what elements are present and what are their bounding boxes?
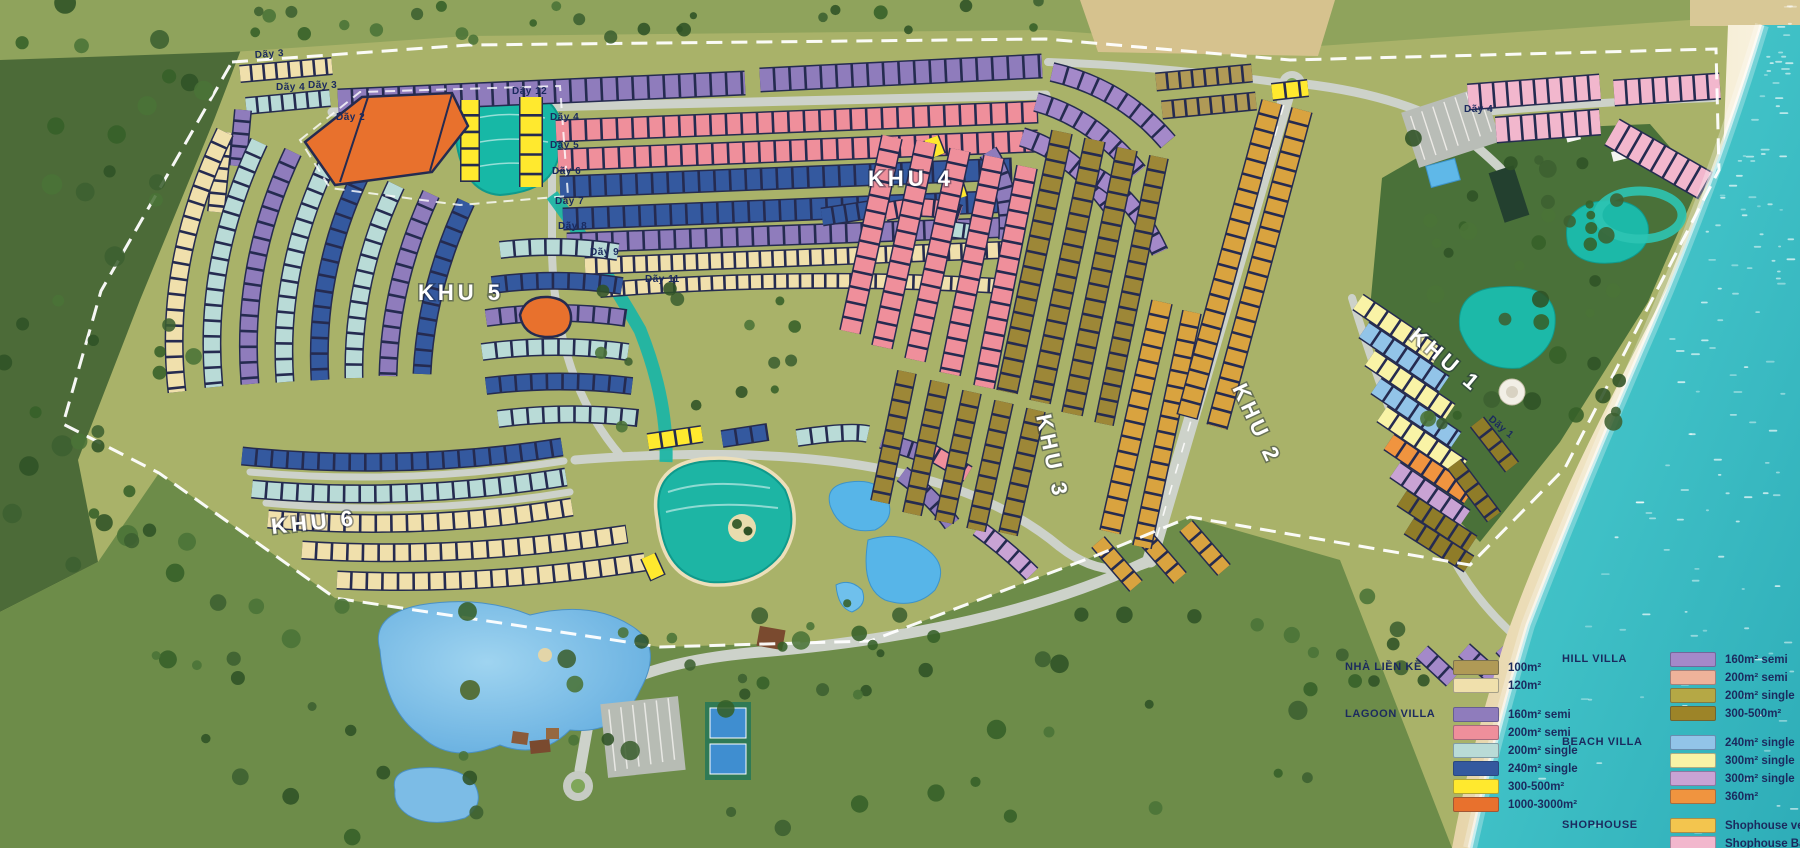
masterplan-canvas: KHU 1KHU 2KHU 3KHU 4KHU 5KHU 6Dãy 3Dãy 4…	[0, 0, 1800, 848]
row-label-2: Dãy 3	[308, 80, 337, 91]
legend-section-title: LAGOON VILLA	[1345, 707, 1453, 720]
wave-lagoon-south	[658, 461, 791, 582]
orange-lot-khu5	[520, 297, 571, 337]
legend-item: 160m² semi	[1670, 652, 1795, 667]
legend-section-title: BEACH VILLA	[1562, 735, 1670, 748]
legend-swatch	[1453, 797, 1499, 812]
legend-label: 200m² semi	[1725, 672, 1788, 684]
legend-swatch	[1670, 735, 1716, 750]
legend-label: 300m² single	[1725, 773, 1795, 785]
legend-swatch	[1453, 707, 1499, 722]
legend-label: 100m²	[1508, 662, 1541, 674]
zone-label-khu-5: KHU 5	[418, 280, 504, 305]
row-label-0: Dãy 3	[254, 48, 284, 61]
legend-label: Shophouse ven biển	[1725, 820, 1800, 832]
legend-item: 360m²	[1670, 789, 1795, 804]
legend-column-right: HILL VILLA160m² semi200m² semi200m² sing…	[1562, 652, 1800, 848]
legend-item: 240m² single	[1453, 761, 1578, 776]
legend-item: 160m² semi	[1453, 707, 1578, 722]
legend-label: 120m²	[1508, 680, 1541, 692]
row-label-12: Dãy 4	[1464, 104, 1493, 115]
legend-swatch	[1670, 670, 1716, 685]
legend-swatch	[1670, 836, 1716, 848]
legend-item: Shophouse Babylon	[1670, 836, 1800, 848]
legend-swatch	[1453, 761, 1499, 776]
legend-section: LAGOON VILLA160m² semi200m² semi200m² si…	[1345, 707, 1580, 812]
legend-item: 300m² single	[1670, 753, 1795, 768]
row-label-5: Dãy 4	[550, 112, 579, 123]
legend-section-title: HILL VILLA	[1562, 652, 1670, 665]
dune-northeast	[1690, 0, 1800, 28]
legend-section-title: NHÀ LIỀN KỀ	[1345, 660, 1453, 673]
legend-label: 300m² single	[1725, 755, 1795, 767]
legend-swatch	[1670, 688, 1716, 703]
legend-item: 240m² single	[1670, 735, 1795, 750]
legend-column-left: NHÀ LIỀN KỀ100m²120m²LAGOON VILLA160m² s…	[1345, 660, 1580, 812]
legend-label: 200m² single	[1725, 690, 1795, 702]
legend-swatch	[1670, 789, 1716, 804]
lagoon-island	[728, 514, 756, 542]
legend-item: 120m²	[1453, 678, 1541, 693]
legend-item: 100m²	[1453, 660, 1541, 675]
legend-swatch	[1453, 725, 1499, 740]
legend-swatch	[1670, 771, 1716, 786]
legend-label: 300-500m²	[1508, 781, 1564, 793]
legend-swatch	[1453, 779, 1499, 794]
legend-section-title: SHOPHOUSE	[1562, 818, 1670, 831]
row-label-7: Dãy 6	[552, 166, 581, 177]
legend-swatch	[1453, 678, 1499, 693]
legend-item: 1000-3000m²	[1453, 797, 1578, 812]
row-label-11: Dãy 11	[645, 274, 680, 285]
legend-section: HILL VILLA160m² semi200m² semi200m² sing…	[1562, 652, 1800, 721]
legend-label: 300-500m²	[1725, 708, 1781, 720]
row-label-9: Dãy 8	[558, 221, 587, 232]
legend-section: NHÀ LIỀN KỀ100m²120m²	[1345, 660, 1580, 693]
legend-item: 200m² single	[1453, 743, 1578, 758]
row-label-6: Dãy 5	[550, 140, 579, 151]
legend-swatch	[1670, 652, 1716, 667]
legend-section: BEACH VILLA240m² single300m² single300m²…	[1562, 735, 1800, 804]
zone-label-khu-4: KHU 4	[868, 166, 954, 191]
legend-item: 300-500m²	[1453, 779, 1578, 794]
legend-swatch	[1453, 660, 1499, 675]
field-north	[1080, 0, 1335, 56]
row-label-3: Dãy 2	[336, 112, 365, 123]
legend-item: 200m² semi	[1453, 725, 1578, 740]
legend-label: 360m²	[1725, 791, 1758, 803]
legend-item: 300-500m²	[1670, 706, 1795, 721]
legend-label: Shophouse Babylon	[1725, 838, 1800, 848]
legend-swatch	[1453, 743, 1499, 758]
legend-item: 200m² single	[1670, 688, 1795, 703]
row-label-1: Dãy 4	[276, 82, 305, 93]
row-label-10: Dãy 9	[590, 247, 619, 258]
legend-section: SHOPHOUSEShophouse ven biểnShophouse Bab…	[1562, 818, 1800, 848]
legend-item: 200m² semi	[1670, 670, 1795, 685]
legend-item: Shophouse ven biển	[1670, 818, 1800, 833]
legend-item: 300m² single	[1670, 771, 1795, 786]
legend-swatch	[1670, 818, 1716, 833]
row-label-8: Dãy 7	[555, 196, 584, 207]
row-label-4: Dãy 12	[512, 86, 547, 97]
legend-label: 240m² single	[1725, 737, 1795, 749]
legend-swatch	[1670, 753, 1716, 768]
legend-label: 160m² semi	[1725, 654, 1788, 666]
legend-swatch	[1670, 706, 1716, 721]
